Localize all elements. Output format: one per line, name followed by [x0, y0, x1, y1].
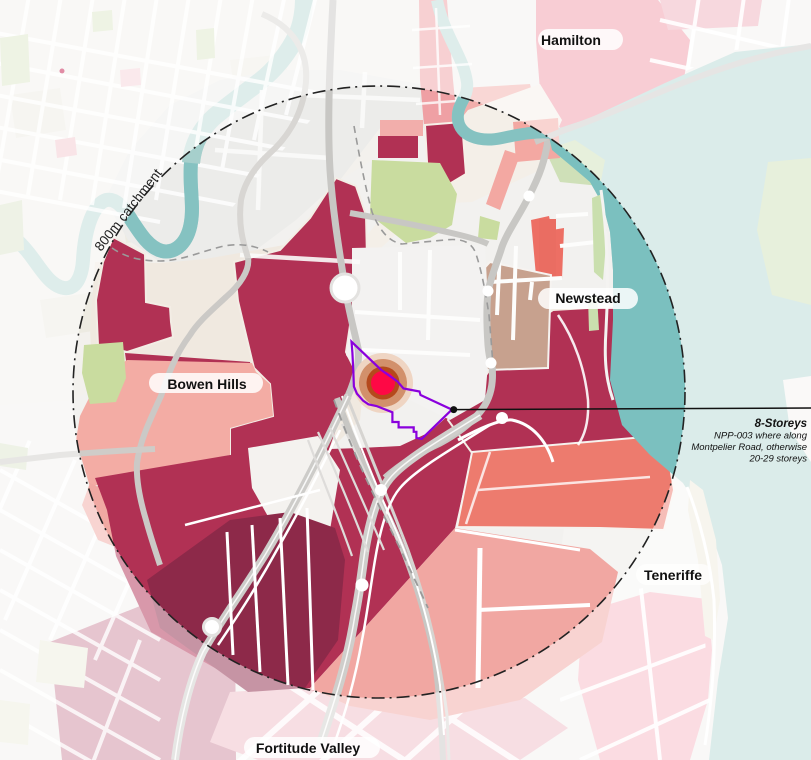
svg-text:NPP-003 where along: NPP-003 where along — [714, 431, 808, 442]
svg-text:20-29 storeys: 20-29 storeys — [748, 454, 807, 465]
svg-text:8-Storeys: 8-Storeys — [755, 418, 807, 430]
svg-text:Newstead: Newstead — [555, 290, 620, 306]
svg-text:Bowen Hills: Bowen Hills — [167, 376, 247, 392]
svg-text:Teneriffe: Teneriffe — [644, 567, 702, 583]
svg-text:Hamilton: Hamilton — [541, 32, 601, 48]
svg-text:Fortitude Valley: Fortitude Valley — [256, 740, 360, 756]
svg-text:Montpelier Road, otherwise: Montpelier Road, otherwise — [691, 442, 807, 453]
